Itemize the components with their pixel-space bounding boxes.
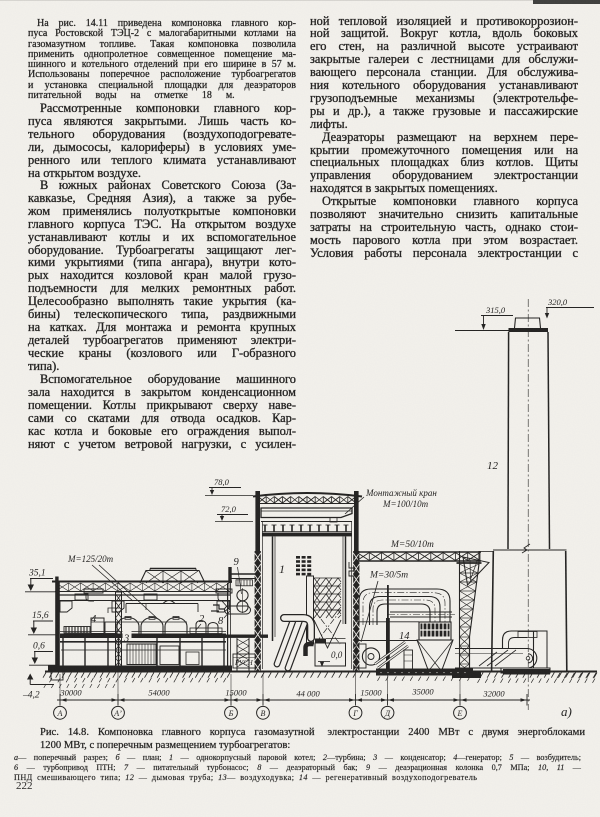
svg-text:4: 4 bbox=[91, 614, 97, 625]
svg-text:Г: Г bbox=[352, 709, 358, 718]
svg-text:54000: 54000 bbox=[148, 688, 170, 698]
svg-text:44 000: 44 000 bbox=[296, 689, 320, 699]
svg-text:15000: 15000 bbox=[360, 688, 382, 698]
svg-text:М=125/20т: М=125/20т bbox=[67, 554, 114, 564]
svg-text:А: А bbox=[57, 709, 63, 718]
svg-text:35000: 35000 bbox=[411, 687, 434, 697]
svg-text:В: В bbox=[261, 709, 266, 718]
svg-text:Аʼ: Аʼ bbox=[113, 709, 122, 718]
svg-text:9: 9 bbox=[234, 557, 240, 568]
svg-text:3: 3 bbox=[123, 634, 129, 645]
svg-text:14: 14 bbox=[399, 631, 410, 642]
svg-text:320,0: 320,0 bbox=[547, 297, 568, 307]
svg-text:8: 8 bbox=[218, 616, 224, 627]
svg-text:Б: Б bbox=[228, 709, 234, 718]
svg-text:а): а) bbox=[561, 704, 572, 719]
svg-text:1: 1 bbox=[279, 562, 285, 576]
svg-text:0,0: 0,0 bbox=[331, 650, 343, 660]
svg-text:М=50/10т: М=50/10т bbox=[390, 540, 434, 550]
svg-text:32000: 32000 bbox=[482, 689, 505, 699]
svg-text:15000: 15000 bbox=[225, 688, 247, 698]
svg-text:М=100/10т: М=100/10т bbox=[382, 499, 429, 509]
svg-text:Д: Д bbox=[384, 709, 391, 718]
svg-text:72,0: 72,0 bbox=[221, 504, 237, 514]
svg-text:315,0: 315,0 bbox=[485, 305, 506, 315]
svg-text:78,0: 78,0 bbox=[214, 477, 230, 487]
svg-text:М=30/5т: М=30/5т bbox=[369, 571, 408, 581]
svg-text:Монтажный кран: Монтажный кран bbox=[365, 488, 437, 498]
svg-text:РУСН: РУСН bbox=[234, 660, 254, 667]
svg-text:12: 12 bbox=[487, 460, 499, 472]
svg-text:Е: Е bbox=[457, 709, 463, 718]
svg-text:0,6: 0,6 bbox=[33, 642, 45, 652]
svg-text:15,6: 15,6 bbox=[32, 611, 49, 621]
svg-text:–4,2: –4,2 bbox=[22, 691, 40, 701]
svg-text:30000: 30000 bbox=[59, 688, 82, 698]
svg-text:35,1: 35,1 bbox=[28, 569, 46, 579]
svg-text:2: 2 bbox=[199, 614, 205, 625]
